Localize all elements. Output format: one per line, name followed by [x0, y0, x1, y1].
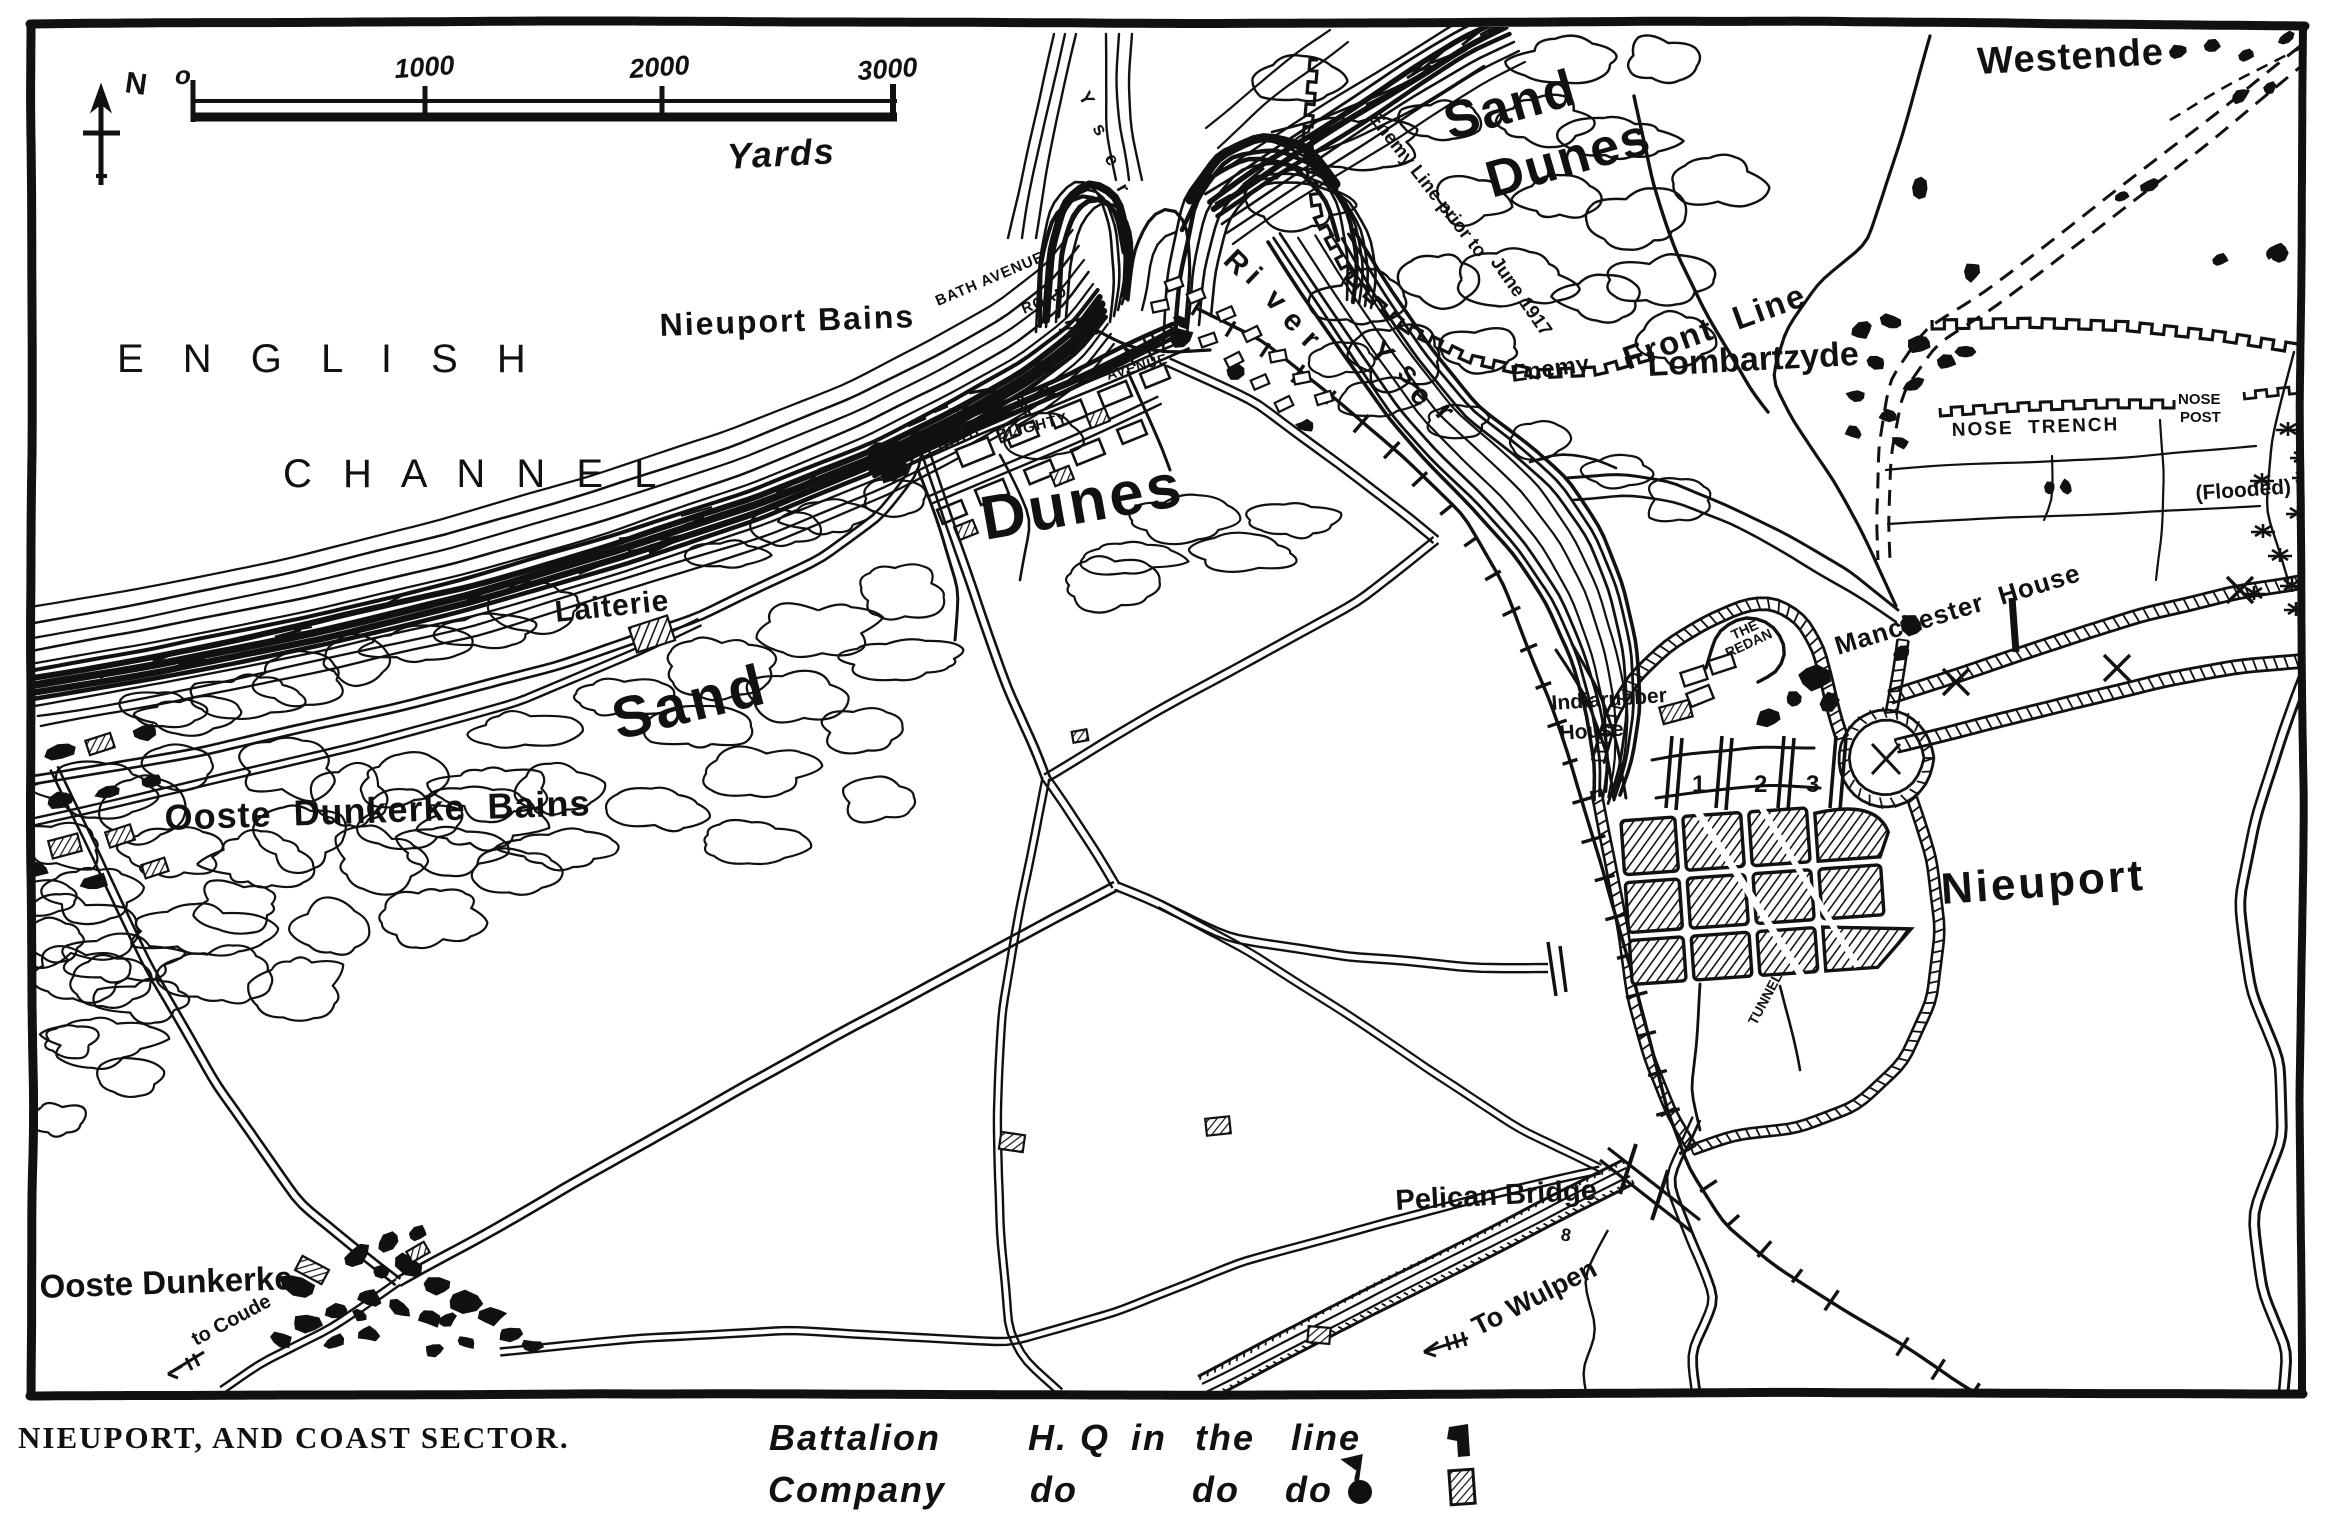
svg-text:Company: Company: [768, 1469, 946, 1510]
svg-text:o: o: [175, 60, 191, 90]
svg-text:do: do: [1285, 1469, 1333, 1510]
svg-text:House: House: [1559, 718, 1625, 745]
svg-text:NOSE: NOSE: [2178, 391, 2221, 408]
svg-text:E N G L I S H: E N G L I S H: [117, 337, 540, 381]
svg-text:NIEUPORT, AND COAST SECTOR.: NIEUPORT, AND COAST SECTOR.: [18, 1420, 570, 1455]
svg-text:C H A N N E L: C H A N N E L: [283, 452, 666, 496]
svg-text:the: the: [1195, 1417, 1255, 1458]
svg-text:2: 2: [1754, 771, 1767, 798]
svg-text:2000: 2000: [627, 50, 690, 84]
svg-text:Yards: Yards: [726, 130, 837, 177]
svg-text:do: do: [1192, 1469, 1240, 1510]
svg-text:1000: 1000: [393, 50, 455, 84]
svg-text:3: 3: [1806, 771, 1819, 798]
svg-text:line: line: [1291, 1417, 1361, 1458]
svg-text:3000: 3000: [856, 52, 918, 86]
svg-text:in: in: [1131, 1417, 1167, 1458]
svg-text:do: do: [1030, 1469, 1078, 1510]
svg-text:Battalion: Battalion: [769, 1417, 941, 1458]
svg-text:POST: POST: [2180, 409, 2221, 426]
svg-text:N: N: [123, 66, 149, 102]
svg-text:H. Q: H. Q: [1028, 1417, 1110, 1458]
svg-text:1: 1: [1692, 771, 1705, 798]
